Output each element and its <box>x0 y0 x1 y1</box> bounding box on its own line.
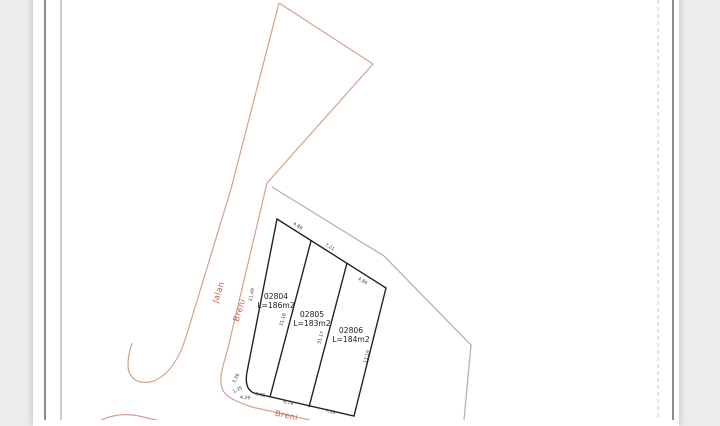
dimension-label-corner-3: 4,29 <box>240 395 251 402</box>
dimension-label-corner-1: 3,36 <box>231 373 241 385</box>
parcel-1-id: 02804 <box>264 292 288 301</box>
road-edge-bottom <box>101 415 157 420</box>
dimension-label-bottom-3: 7,59 <box>325 408 336 416</box>
dimension-label-right: 13,19 <box>363 350 372 364</box>
dimension-label-left: 21,49 <box>248 288 256 302</box>
road-edge-east <box>221 3 373 420</box>
parcel-3-area: L=184m2 <box>332 335 369 344</box>
dimension-label-corner-2: 1,35 <box>232 385 244 395</box>
parcel-2-area: L=183m2 <box>293 319 330 328</box>
road-name-bottom-breni: Breni <box>274 408 299 420</box>
parcel-1-area: L=186m2 <box>257 301 294 310</box>
dimension-label-top-2: 7,21 <box>324 242 336 253</box>
road-name-word-breni: Breni <box>231 297 248 322</box>
site-plan-drawing: 02804 L=186m2 02805 L=183m2 02806 L=184m… <box>0 0 720 420</box>
adjacent-parcel-boundary <box>272 187 471 420</box>
dimension-label-divider-1: 31,18 <box>278 313 287 327</box>
dimension-label-bottom-2: 6,79 <box>283 399 294 407</box>
parcel-2-id: 02805 <box>300 310 324 319</box>
road-name-word-jalan: Jalan <box>210 280 227 305</box>
dimension-label-top-3: 4,86 <box>357 276 369 286</box>
canvas-background: 02804 L=186m2 02805 L=183m2 02806 L=184m… <box>0 0 720 420</box>
dimension-label-divider-2: 31,17 <box>316 331 325 345</box>
dimension-label-bottom-1: 5,95 <box>255 391 266 399</box>
parcel-3-id: 02806 <box>339 326 363 335</box>
